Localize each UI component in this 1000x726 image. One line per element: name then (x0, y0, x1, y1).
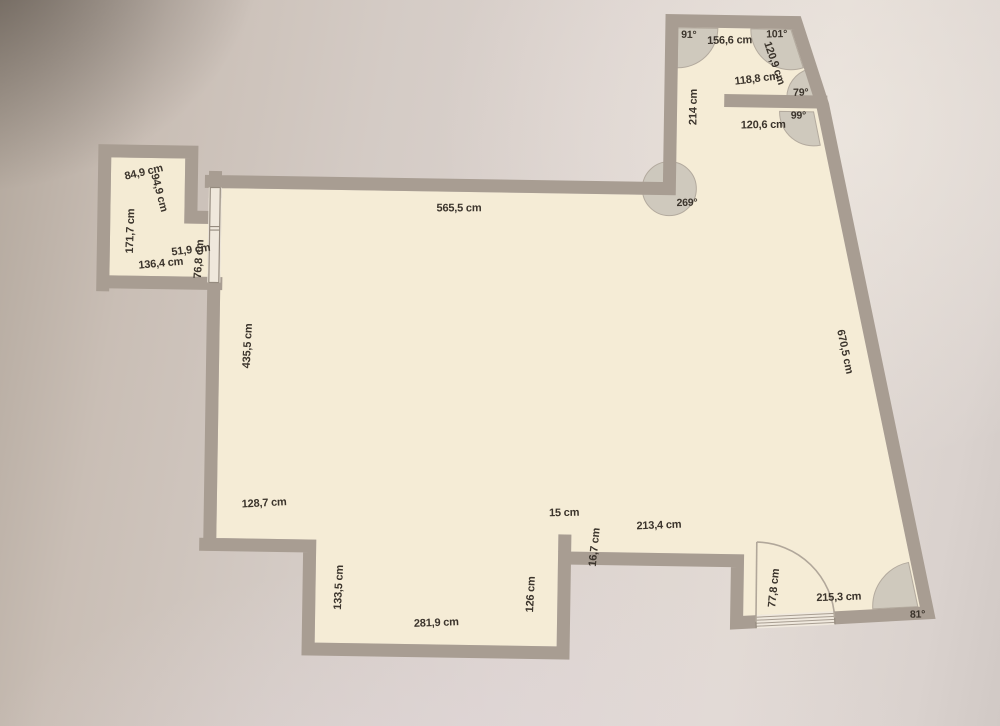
dim-top-room-left: 214 cm (687, 88, 700, 125)
floor-plan-wrapper: 91° 101° 79° 99° 269° 81° 156,6 cm 120,9… (0, 0, 1000, 726)
dim-lower-right-bottom: 215,3 cm (816, 591, 862, 605)
angle-label-91: 91° (681, 29, 696, 41)
dim-main-bottom: 281,9 cm (414, 616, 460, 630)
angle-label-99: 99° (791, 110, 807, 122)
dim-main-left: 435,5 cm (241, 323, 255, 369)
dim-stub-height: 126 cm (524, 576, 538, 613)
photo-background: 91° 101° 79° 99° 269° 81° 156,6 cm 120,9… (0, 0, 1000, 726)
dim-top-room-top: 156,6 cm (707, 34, 753, 47)
dim-top-room-divider: 120,6 cm (741, 119, 787, 132)
angle-label-81: 81° (910, 608, 926, 620)
dim-annex-left: 171,7 cm (124, 208, 137, 254)
dim-step-down: 133,5 cm (332, 564, 346, 610)
angle-label-269: 269° (676, 197, 697, 209)
wall-top-room-divider (731, 101, 821, 102)
dim-step-wall: 128,7 cm (241, 496, 287, 510)
dim-lower-right-top: 213,4 cm (636, 519, 682, 533)
angle-label-101: 101° (766, 28, 787, 40)
floor-plan: 91° 101° 79° 99° 269° 81° 156,6 cm 120,9… (0, 0, 1000, 726)
dim-main-top: 565,5 cm (436, 202, 481, 214)
angle-label-79: 79° (793, 87, 809, 99)
dim-stub-width: 15 cm (549, 507, 580, 520)
